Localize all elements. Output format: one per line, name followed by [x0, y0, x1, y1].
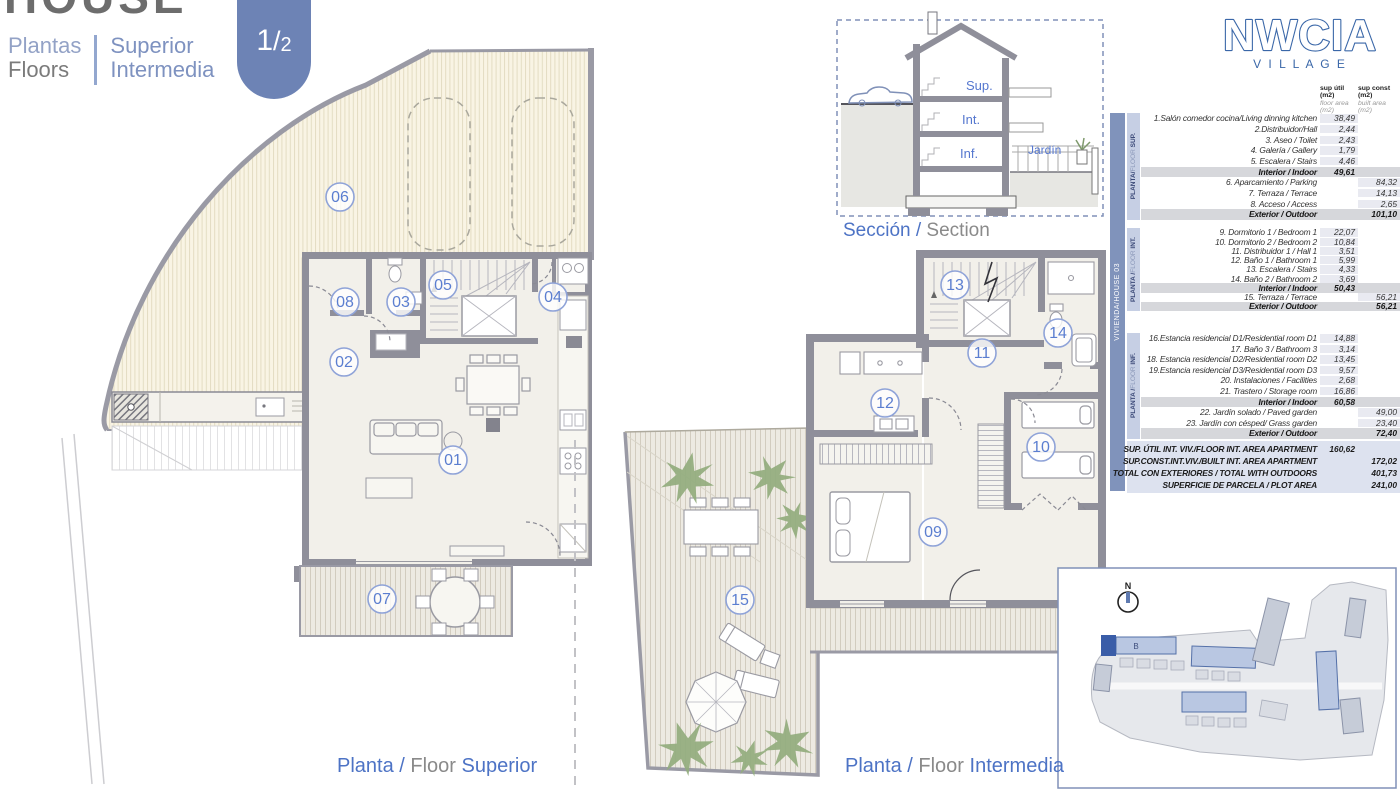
outdoor-kitchen	[112, 392, 332, 422]
section-bar-sup: PLANTA/FLOOR SUP.	[1127, 113, 1140, 220]
caption-floor-superior: Planta / Floor Superior	[337, 755, 537, 778]
pouf	[486, 418, 500, 432]
table-section-sup: PLANTA/FLOOR SUP. 1.Salón comedor cocina…	[1127, 113, 1400, 220]
section-drawing: Sup. Int. Inf. Jardín	[837, 12, 1103, 216]
col-header-built-area: sup const (m2) built area (m2)	[1358, 85, 1400, 115]
terrace-superior	[300, 566, 512, 636]
area-table-row: 18. Estancia residencial D2/Residential …	[1141, 354, 1400, 365]
svg-text:06: 06	[331, 189, 349, 206]
right-floor-plan: 13 14 11 12 10 09 15	[625, 250, 1106, 783]
caption-floor-intermedia: Planta / Floor Intermedia	[845, 755, 1064, 778]
svg-text:08: 08	[336, 294, 354, 311]
room-marker: 15	[726, 586, 754, 614]
svg-text:01: 01	[444, 452, 462, 469]
area-table-row: SUP. ÚTIL INT. VIV./FLOOR INT. AREA APAR…	[1127, 443, 1400, 455]
svg-text:03: 03	[392, 294, 410, 311]
area-table-row: 5. Escalera / Stairs4,46	[1141, 156, 1400, 167]
svg-text:04: 04	[544, 289, 562, 306]
section-label-sup: Sup.	[966, 78, 993, 93]
area-table-row: 4. Galería / Gallery1,79	[1141, 145, 1400, 156]
room-marker: 06	[326, 183, 354, 211]
svg-text:15: 15	[731, 592, 749, 609]
section-label-jardin: Jardín	[1028, 143, 1061, 157]
area-table-row: Exterior / Outdoor72,40	[1141, 428, 1400, 439]
header-divider	[94, 35, 97, 85]
section-label-inf: Inf.	[960, 146, 978, 161]
area-table-row: 19.Estancia residencial D3/Residential r…	[1141, 365, 1400, 376]
svg-text:09: 09	[924, 524, 942, 541]
room-marker: 14	[1044, 319, 1072, 347]
col-header-floor-area: sup útil (m2) floor area (m2)	[1320, 85, 1358, 115]
left-floor-plan: 06 08 03 05 04 02 01 07	[62, 48, 594, 784]
brochure-sheet: 06 08 03 05 04 02 01 07	[0, 0, 1400, 791]
room-marker: 13	[941, 271, 969, 299]
area-table-row: 8. Acceso / Access2,65	[1141, 199, 1400, 210]
apartment-intermedia	[806, 250, 1106, 610]
wardrobe	[978, 424, 1004, 508]
svg-text:11: 11	[974, 345, 991, 362]
room-marker: 07	[368, 585, 396, 613]
svg-text:14: 14	[1049, 325, 1067, 342]
area-table-row: 16.Estancia residencial D1/Residential r…	[1141, 333, 1400, 344]
page-title: HOUSE	[4, 0, 188, 24]
area-table-row: 3. Aseo / Toilet2,43	[1141, 134, 1400, 145]
room-marker: 03	[387, 288, 415, 316]
svg-text:10: 10	[1032, 439, 1050, 456]
area-table-row: Exterior / Outdoor56,21	[1141, 302, 1400, 311]
area-table-row: Interior / Indoor49,61	[1141, 167, 1400, 178]
room-marker: 08	[331, 288, 359, 316]
room-marker: 05	[429, 271, 457, 299]
floors-label: Plantas Floors	[8, 34, 81, 85]
header-labels: Plantas Floors Superior Intermedia	[8, 34, 214, 85]
logo-name: NWCIA	[1223, 11, 1377, 60]
sofa	[370, 420, 442, 454]
area-table-row: 21. Trastero / Storage room16,86	[1141, 386, 1400, 397]
parasol	[686, 672, 746, 732]
building-label: B	[1133, 642, 1138, 651]
closet-row	[820, 444, 932, 464]
tv-cabinet	[450, 546, 504, 556]
area-table-row: 23. Jardín con césped/ Grass garden23,40	[1141, 418, 1400, 429]
section-bar-int: PLANTA /FLOOR INT.	[1127, 228, 1140, 311]
section-bar-inf: PLANTA /FLOOR INF.	[1127, 333, 1140, 439]
page-indicator: 1/2	[237, 0, 311, 99]
house-vertical-label: VIVIENDA/HOUSE 03	[1110, 113, 1125, 491]
svg-text:02: 02	[335, 354, 353, 371]
brand-logo: NWCIA V I L L A G E	[1203, 6, 1397, 72]
svg-text:07: 07	[373, 591, 391, 608]
area-table-row: Exterior / Outdoor101,10	[1141, 209, 1400, 220]
table-totals: SUP. ÚTIL INT. VIV./FLOOR INT. AREA APAR…	[1127, 441, 1400, 493]
double-bed	[830, 492, 910, 562]
section-label-int: Int.	[962, 112, 980, 127]
room-marker: 04	[539, 283, 567, 311]
room-marker: 09	[919, 518, 947, 546]
site-plan: B N	[1058, 568, 1396, 788]
area-table-row: 17. Baño 3 / Bathroom 33,14	[1141, 344, 1400, 355]
room-marker: 02	[330, 348, 358, 376]
area-table-row: SUP.CONST.INT.VIV./BUILT INT. AREA APART…	[1127, 455, 1400, 467]
svg-text:05: 05	[434, 277, 452, 294]
table-header: sup útil (m2) floor area (m2) sup const …	[1320, 85, 1400, 115]
logo-subtitle: V I L L A G E	[1253, 57, 1347, 71]
room-marker: 11	[968, 339, 996, 367]
table-section-int: PLANTA /FLOOR INT. 9. Dormitorio 1 / Bed…	[1127, 228, 1400, 311]
caption-section: Sección / Section	[843, 220, 990, 242]
table-section-inf: PLANTA /FLOOR INF. 16.Estancia residenci…	[1127, 333, 1400, 439]
area-table-row: 2.Distribuidor/Hall2,44	[1141, 124, 1400, 135]
room-marker: 12	[871, 389, 899, 417]
area-table-row: TOTAL CON EXTERIORES / TOTAL WITH OUTDOO…	[1127, 467, 1400, 479]
kitchen	[558, 296, 588, 558]
area-table-row: 22. Jardín solado / Paved garden49,00	[1141, 407, 1400, 418]
room-marker: 01	[439, 446, 467, 474]
floor-names-label: Superior Intermedia	[110, 34, 214, 85]
area-table-row: 20. Instalaciones / Facilities2,68	[1141, 375, 1400, 386]
room-marker: 10	[1027, 433, 1055, 461]
north-label: N	[1125, 581, 1132, 591]
area-table-row: 6. Aparcamiento / Parking84,32	[1141, 177, 1400, 188]
svg-text:13: 13	[946, 277, 964, 294]
area-table-row: SUPERFICIE DE PARCELA / PLOT AREA241,00	[1127, 479, 1400, 491]
area-table-row: Interior / Indoor60,58	[1141, 397, 1400, 408]
sideboard	[366, 478, 412, 498]
area-table-row: 1.Salón comedor cocina/Living dinning ki…	[1141, 113, 1400, 124]
svg-text:12: 12	[876, 395, 894, 412]
highlighted-unit	[1101, 635, 1116, 656]
areas-table: sup útil (m2) floor area (m2) sup const …	[1110, 85, 1400, 497]
area-table-row: 7. Terraza / Terrace14,13	[1141, 188, 1400, 199]
